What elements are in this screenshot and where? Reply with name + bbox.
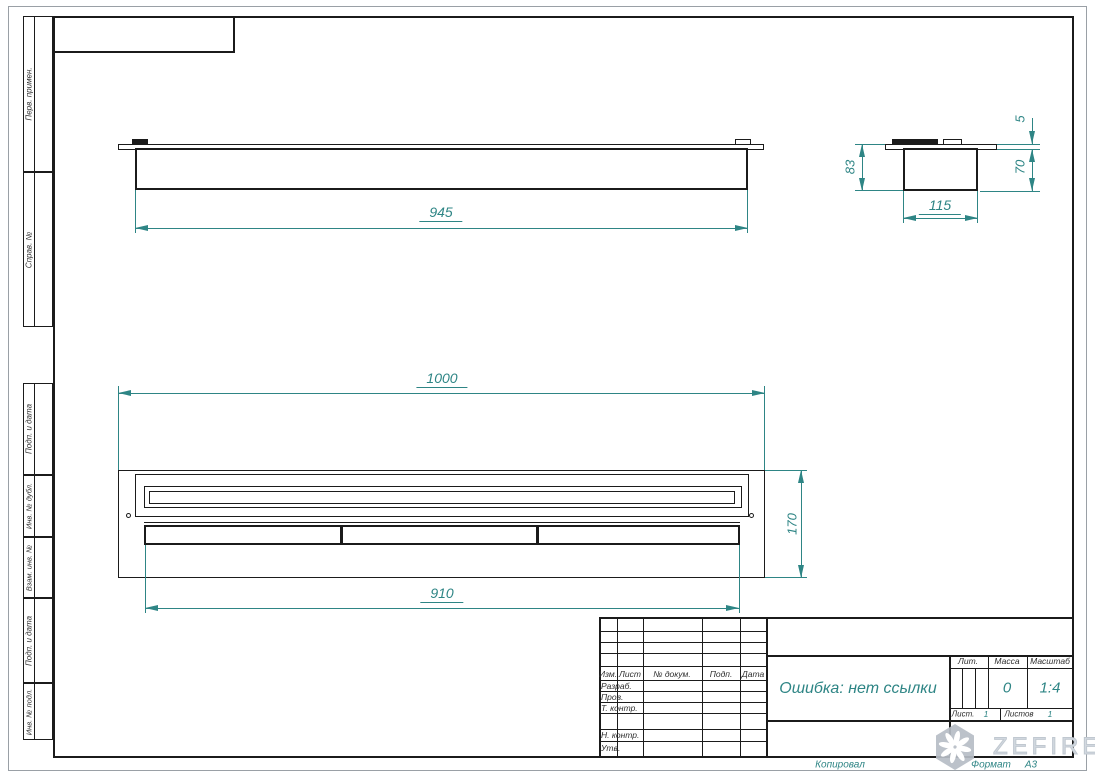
title-block-line [643,617,644,758]
divider-line [34,476,35,536]
margin-label: Подп. и дата [25,615,34,665]
title-block-line [599,631,766,632]
arrow-icon [798,565,804,578]
arrow-icon [752,390,765,396]
title-block-line [599,691,766,692]
col-doc-no: № докум. [653,669,690,679]
arrow-icon [903,215,916,221]
sheet-label: Лист. [952,710,975,719]
arrow-icon [726,605,739,611]
drawing-sheet: Перв. примен. Справ. № Подп. и дата Инв.… [0,0,1095,777]
title-block-line [1027,655,1028,708]
front-left-tab [132,139,148,145]
title-block-line [702,617,703,758]
sheets-value: 1 [1048,709,1053,719]
title-block-line [988,655,989,708]
divider-line [34,17,35,171]
dim-plan-width: 1000 [416,370,467,388]
dim-side-body-height: 70 [1013,160,1028,174]
margin-box-podp-data-2: Подп. и дата [23,598,53,683]
margin-box-inv-podl: Инв. № подл. [23,683,53,740]
arrow-icon [735,225,748,231]
margin-label: Перв. примен. [25,67,34,120]
divider-line [34,599,35,682]
row-n-kontr: Н. контр. [601,730,639,740]
extension-line [980,191,1040,192]
dim-front-width: 945 [419,204,462,222]
title-block-line [599,713,766,714]
top-left-designation-box [53,16,235,53]
side-body-outline [903,148,978,191]
lid-divider [340,525,343,545]
plan-screw-hole-left [126,513,131,518]
copied-label: Копировал [815,760,865,771]
col-izm: Изм. [599,669,617,679]
margin-label: Взам. инв. № [25,544,34,590]
margin-box-inv-dubl: Инв. № дубл. [23,475,53,537]
mass-value: 0 [1003,680,1011,697]
row-t-kontr: Т. контр. [601,703,638,713]
lid-top-edge [144,522,740,523]
side-tab-small [943,139,962,145]
lid-divider [536,525,539,545]
title-block-line [1000,708,1001,720]
arrow-icon [118,390,131,396]
sheet-value: 1 [984,709,989,719]
mass-label: Масса [994,656,1019,666]
plan-screw-hole-right [749,513,754,518]
front-body-outline [135,148,748,190]
scale-value: 1:4 [1040,680,1061,697]
margin-box-sprav-no: Справ. № [23,172,53,327]
hexagon-shape [936,724,974,770]
margin-label: Инв. № подл. [25,688,34,735]
title-block-line [599,666,766,667]
title-block-line [975,668,976,708]
col-podp: Подп. [710,669,733,679]
drawing-frame [53,16,1074,758]
col-list: Лист [619,669,641,679]
divider-line [34,173,35,326]
lit-label: Лит. [958,656,978,666]
extension-line [118,386,119,470]
margin-label: Инв. № дубл. [25,483,34,529]
dimension-line [135,228,748,229]
dim-side-height: 83 [843,160,858,174]
row-prov: Пров. [601,692,623,702]
row-razrab: Разраб. [601,681,632,691]
dim-plan-lid-width: 910 [420,585,463,603]
dimension-line [801,470,802,578]
scale-label: Масштаб [1030,656,1070,666]
sheets-label: Листов [1004,710,1033,719]
title-block-line [599,741,766,742]
dim-plan-depth: 170 [785,513,800,535]
dimension-line [145,608,739,609]
title-block-line [766,720,1074,722]
format-value: А3 [1025,760,1037,771]
extension-line [764,386,765,470]
arrow-icon [1029,178,1035,191]
plan-lid-bar [144,525,740,545]
arrow-icon [859,178,865,191]
margin-box-vzam-inv: Взам. инв. № [23,537,53,598]
arrow-icon [859,144,865,157]
plan-slot-inner [149,491,735,504]
margin-box-perv-primen: Перв. примен. [23,16,53,172]
title-block-line [740,617,741,758]
dim-side-flange: 5 [1013,115,1028,122]
title-block-line [766,617,768,758]
side-tab-wide [892,139,938,145]
title-block-line [599,617,1074,619]
margin-label: Справ. № [25,231,34,267]
front-right-tab [735,139,751,145]
divider-line [34,684,35,739]
divider-line [34,384,35,474]
row-utv: Утв. [601,743,620,753]
margin-label: Подп. и дата [25,404,34,454]
dim-side-width: 115 [919,197,961,215]
extension-line [997,144,1040,145]
col-data: Дата [742,669,764,679]
arrow-icon [798,470,804,483]
dimension-line [118,393,765,394]
divider-line [34,538,35,597]
document-name: Ошибка: нет ссылки [779,680,937,698]
arrow-icon [1029,131,1035,144]
zefire-logo-icon [931,722,979,777]
arrow-icon [145,605,158,611]
extension-line [145,545,146,613]
zefire-watermark-text: ZEFIRE [993,733,1095,761]
title-block-line [599,653,766,654]
title-block-line [949,668,1074,669]
title-block-line [599,642,766,643]
margin-box-podp-data-1: Подп. и дата [23,383,53,475]
extension-line [739,545,740,613]
title-block-line [962,668,963,708]
arrow-icon [965,215,978,221]
arrow-icon [135,225,148,231]
